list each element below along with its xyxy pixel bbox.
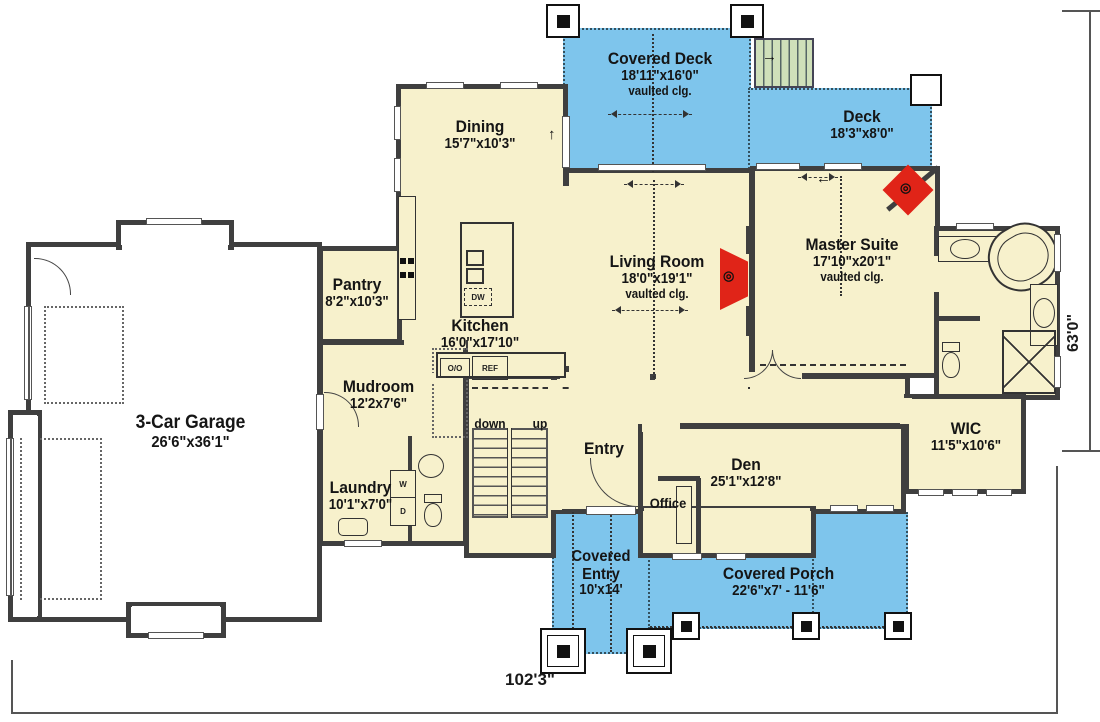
window xyxy=(500,82,538,89)
dishwasher: DW xyxy=(464,288,492,306)
window xyxy=(716,553,746,560)
porch-post xyxy=(884,612,912,640)
fireplace-cap xyxy=(746,226,754,254)
entry-column xyxy=(540,628,586,674)
island-sink xyxy=(466,268,484,284)
room-name: Office xyxy=(633,496,703,511)
front-door-opening xyxy=(586,506,636,515)
toilet-bowl xyxy=(942,352,960,378)
fireplace-icon: ◎ xyxy=(900,180,911,196)
room-label-covered-entry: Covered Entry 10'x14' xyxy=(557,548,645,599)
width-dimension-label: 102'3" xyxy=(460,670,600,690)
window xyxy=(426,82,464,89)
room-name: Kitchen xyxy=(406,317,553,336)
opening-den xyxy=(642,422,680,432)
window xyxy=(952,489,978,496)
floor-plan: DW O/O REF → ◎ ◎ W D xyxy=(0,0,1100,722)
garage-patch xyxy=(24,416,38,616)
window xyxy=(830,505,858,512)
room-name: Dining xyxy=(402,118,558,137)
room-name: Living Room xyxy=(579,253,735,272)
shower xyxy=(1002,330,1056,394)
room-label-entry: Entry xyxy=(551,440,658,459)
window xyxy=(956,223,994,230)
opening-living-bottom xyxy=(570,385,748,395)
window xyxy=(756,163,800,170)
dimension-extension xyxy=(11,660,13,714)
garage-patch xyxy=(132,606,220,620)
dimension-line-bottom xyxy=(12,712,1057,714)
room-label-garage: 3-Car Garage 26'6"x36'1" xyxy=(115,413,267,451)
room-label-covered-deck: Covered Deck 18'11"x16'0" vaulted clg. xyxy=(582,50,738,98)
depth-dimension-label: 63'0" xyxy=(1065,293,1087,373)
room-dims: 18'0"x19'1" xyxy=(579,272,735,288)
window xyxy=(146,218,202,225)
opening-kitchen-left xyxy=(394,345,404,375)
garage-patch xyxy=(122,244,228,254)
window xyxy=(1054,234,1061,272)
room-note: vaulted clg. xyxy=(579,288,735,302)
room-note: vaulted clg. xyxy=(582,85,738,99)
room-label-mudroom: Mudroom 12'2x7'6" xyxy=(303,378,455,413)
dimension-extension xyxy=(1056,466,1058,714)
entry-column xyxy=(626,628,672,674)
room-name: 3-Car Garage xyxy=(115,413,267,434)
range-burner xyxy=(408,258,414,264)
room-name: Pantry xyxy=(283,276,430,295)
island-sink xyxy=(466,250,484,266)
room-label-laundry: Laundry 10'1"x7'0" xyxy=(285,479,437,514)
window xyxy=(918,489,944,496)
stairs-down-label: down xyxy=(464,417,516,431)
opening-hall-top xyxy=(656,372,750,382)
garage-door-track xyxy=(44,306,124,404)
double-oven: O/O xyxy=(440,358,470,378)
laundry-sink xyxy=(338,518,368,536)
room-dims: 8'2"x10'3" xyxy=(283,295,430,311)
room-name: Covered Porch xyxy=(703,565,855,584)
room-name: Covered Entry xyxy=(557,548,645,583)
refrigerator: REF xyxy=(472,356,508,380)
room-name: Entry xyxy=(551,440,658,459)
room-name: WIC xyxy=(892,420,1039,439)
room-label-living: Living Room 18'0"x19'1" vaulted clg. xyxy=(579,253,735,301)
fireplace-cap xyxy=(746,306,754,336)
stairs-up-label: up xyxy=(514,417,566,431)
room-label-wic: WIC 11'5"x10'6" xyxy=(892,420,1039,455)
room-note: vaulted clg. xyxy=(774,271,930,285)
bath-sink2 xyxy=(1033,298,1055,328)
room-dims: 16'0"x17'10" xyxy=(406,336,553,352)
dimension-arrow xyxy=(612,310,688,311)
room-label-pantry: Pantry 8'2"x10'3" xyxy=(283,276,430,311)
room-dims: 18'11"x16'0" xyxy=(582,69,738,85)
room-label-master: Master Suite 17'10"x20'1" vaulted clg. xyxy=(774,236,930,284)
room-name: Laundry xyxy=(285,479,437,498)
room-dims: 11'5"x10'6" xyxy=(892,439,1039,455)
porch-post xyxy=(672,612,700,640)
window xyxy=(866,505,894,512)
bath-sink xyxy=(950,239,980,259)
room-dims: 22'6"x7' - 11'6" xyxy=(703,584,855,600)
room-label-office: Office xyxy=(633,496,703,511)
room-dims: 25'1"x12'8" xyxy=(672,475,819,491)
window xyxy=(394,106,401,140)
dimension-arrow xyxy=(608,114,692,115)
garage-door-line xyxy=(10,438,12,596)
room-name: Covered Deck xyxy=(582,50,738,69)
room-label-covered-porch: Covered Porch 22'6"x7' - 11'6" xyxy=(703,565,855,600)
room-dims: 15'7"x10'3" xyxy=(402,137,558,153)
room-label-deck: Deck 18'3"x8'0" xyxy=(784,108,940,143)
toilet-compartment-wall xyxy=(936,316,980,321)
sliding-door xyxy=(598,164,706,171)
toilet-tank xyxy=(942,342,960,352)
window xyxy=(344,540,382,547)
dimension-line-right xyxy=(1089,11,1091,451)
room-dims: 26'6"x36'1" xyxy=(115,434,267,452)
opening-entry-top xyxy=(560,372,650,382)
garage-door-line xyxy=(28,306,30,400)
window xyxy=(394,158,401,192)
room-dims: 18'3"x8'0" xyxy=(784,127,940,143)
room-dims: 12'2x7'6" xyxy=(303,397,455,413)
room-dims: 10'x14' xyxy=(557,583,645,599)
opening-dining-living xyxy=(560,186,572,366)
dimension-arrow xyxy=(624,184,684,185)
deck-door xyxy=(562,116,570,168)
room-name: Deck xyxy=(784,108,940,127)
deck-post xyxy=(546,4,580,38)
range-burner xyxy=(400,258,406,264)
dimension-tick xyxy=(1062,450,1100,452)
stair-divider xyxy=(507,428,512,518)
powder-sink xyxy=(418,454,444,478)
porch-post xyxy=(792,612,820,640)
door-arrow-icon: ← xyxy=(816,170,831,187)
stair-direction-arrow-icon: → xyxy=(762,48,777,65)
room-name: Den xyxy=(672,456,819,475)
room-label-kitchen: Kitchen 16'0"x17'10" xyxy=(406,317,553,352)
garage-rear-door xyxy=(148,632,204,639)
hallway-strip xyxy=(650,374,910,428)
room-label-dining: Dining 15'7"x10'3" xyxy=(402,118,558,153)
deck-post xyxy=(910,74,942,106)
opening-entry-hall xyxy=(646,380,658,424)
deck-post xyxy=(730,4,764,38)
window xyxy=(824,163,862,170)
room-label-den: Den 25'1"x12'8" xyxy=(672,456,819,491)
dimension-tick xyxy=(1062,10,1100,12)
window xyxy=(672,553,702,560)
window xyxy=(1054,356,1061,388)
room-name: Master Suite xyxy=(774,236,930,255)
window xyxy=(986,489,1012,496)
room-dims: 17'10"x20'1" xyxy=(774,255,930,271)
room-name: Mudroom xyxy=(303,378,455,397)
room-dims: 10'1"x7'0" xyxy=(285,498,437,514)
